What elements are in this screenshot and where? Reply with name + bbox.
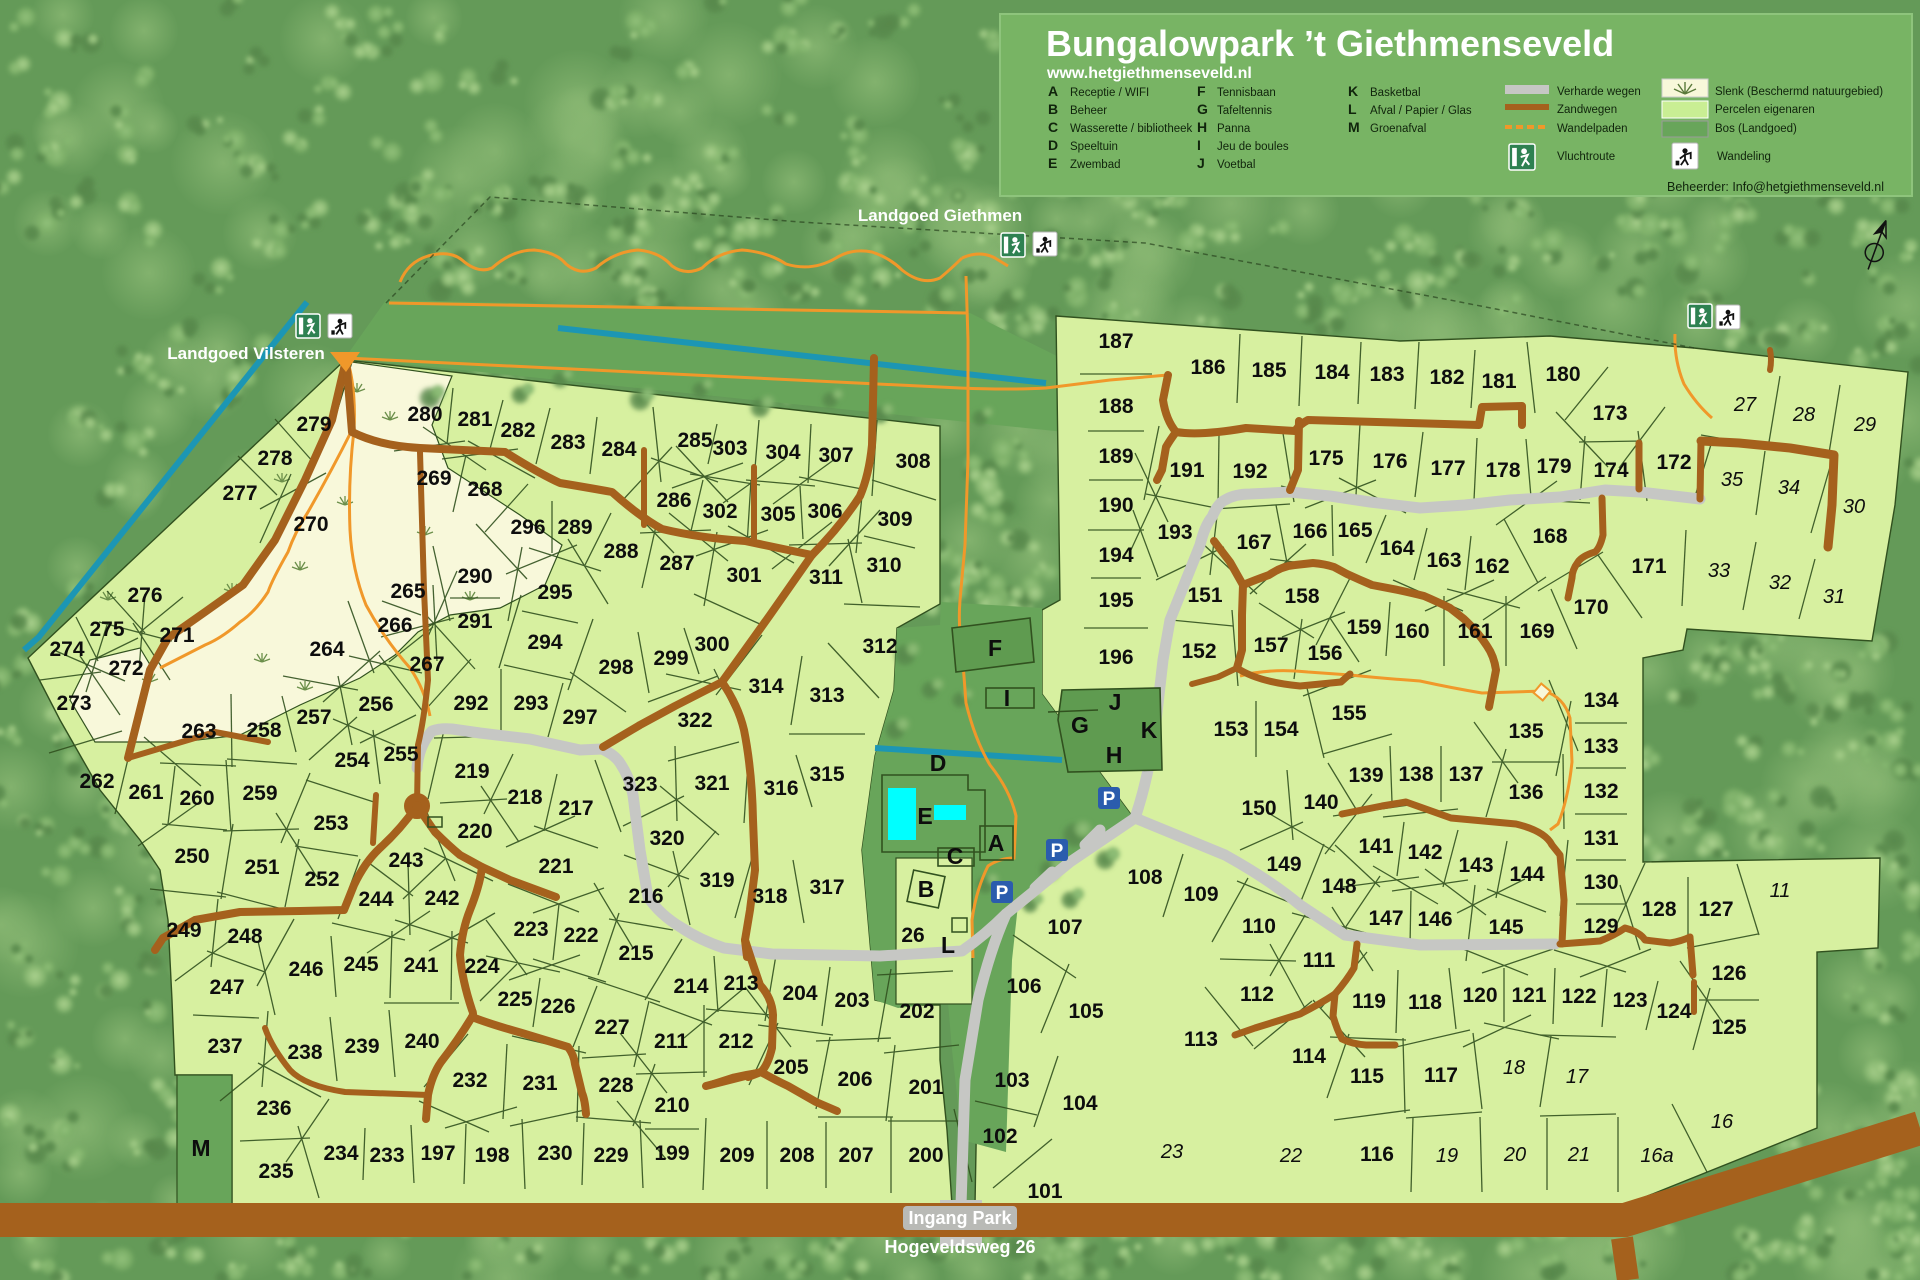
svg-text:I: I xyxy=(1197,137,1201,153)
svg-text:133: 133 xyxy=(1583,735,1618,758)
svg-text:147: 147 xyxy=(1368,907,1403,930)
svg-text:300: 300 xyxy=(694,633,729,656)
svg-text:270: 270 xyxy=(293,513,328,536)
svg-text:289: 289 xyxy=(557,516,592,539)
svg-text:146: 146 xyxy=(1417,908,1452,931)
svg-text:294: 294 xyxy=(527,631,562,654)
svg-text:210: 210 xyxy=(654,1094,689,1117)
svg-text:170: 170 xyxy=(1573,596,1608,619)
svg-text:200: 200 xyxy=(908,1144,943,1167)
svg-text:D: D xyxy=(930,750,947,776)
svg-text:32: 32 xyxy=(1769,572,1791,594)
svg-text:206: 206 xyxy=(837,1068,872,1091)
svg-text:191: 191 xyxy=(1169,459,1204,482)
svg-text:235: 235 xyxy=(258,1160,293,1183)
svg-text:225: 225 xyxy=(497,988,532,1011)
svg-text:256: 256 xyxy=(358,693,393,716)
svg-text:293: 293 xyxy=(513,692,548,715)
svg-text:234: 234 xyxy=(323,1142,358,1165)
svg-text:241: 241 xyxy=(403,954,438,977)
svg-text:135: 135 xyxy=(1508,720,1543,743)
svg-text:31: 31 xyxy=(1823,586,1845,608)
svg-text:Beheerder: Info@hetgiethmensev: Beheerder: Info@hetgiethmenseveld.nl xyxy=(1667,180,1884,194)
svg-text:180: 180 xyxy=(1545,363,1580,386)
svg-text:204: 204 xyxy=(782,982,817,1005)
svg-text:307: 307 xyxy=(818,444,853,467)
svg-text:Beheer: Beheer xyxy=(1070,105,1107,117)
svg-text:Zandwegen: Zandwegen xyxy=(1557,104,1617,116)
svg-text:242: 242 xyxy=(424,887,459,910)
svg-text:H: H xyxy=(1106,742,1123,768)
svg-text:285: 285 xyxy=(677,429,712,452)
svg-text:Wandeling: Wandeling xyxy=(1717,151,1771,163)
svg-text:134: 134 xyxy=(1583,689,1618,712)
svg-text:181: 181 xyxy=(1481,370,1516,393)
svg-text:168: 168 xyxy=(1532,525,1567,548)
svg-text:233: 233 xyxy=(369,1144,404,1167)
svg-text:231: 231 xyxy=(522,1072,557,1095)
svg-text:272: 272 xyxy=(108,657,143,680)
svg-text:104: 104 xyxy=(1062,1092,1097,1115)
svg-text:215: 215 xyxy=(618,942,653,965)
svg-text:319: 319 xyxy=(699,869,734,892)
svg-text:Percelen eigenaren: Percelen eigenaren xyxy=(1715,104,1815,116)
svg-text:C: C xyxy=(1048,119,1058,135)
svg-text:240: 240 xyxy=(404,1030,439,1053)
svg-text:118: 118 xyxy=(1408,991,1442,1014)
svg-text:174: 174 xyxy=(1593,459,1628,482)
svg-text:166: 166 xyxy=(1292,520,1327,543)
svg-text:247: 247 xyxy=(209,976,244,999)
svg-text:268: 268 xyxy=(467,478,502,501)
svg-text:207: 207 xyxy=(838,1144,873,1167)
svg-text:165: 165 xyxy=(1337,519,1372,542)
svg-text:297: 297 xyxy=(562,706,597,729)
svg-text:221: 221 xyxy=(538,855,573,878)
svg-text:117: 117 xyxy=(1424,1064,1458,1087)
svg-text:312: 312 xyxy=(862,635,897,658)
svg-text:249: 249 xyxy=(166,919,201,942)
svg-text:142: 142 xyxy=(1407,841,1442,864)
svg-text:193: 193 xyxy=(1157,521,1192,544)
svg-text:Speeltuin: Speeltuin xyxy=(1070,141,1118,153)
svg-text:212: 212 xyxy=(718,1030,753,1053)
svg-text:280: 280 xyxy=(407,403,442,426)
svg-text:124: 124 xyxy=(1656,1000,1691,1023)
svg-text:105: 105 xyxy=(1068,1000,1103,1023)
svg-text:255: 255 xyxy=(383,743,418,766)
svg-text:222: 222 xyxy=(563,924,598,947)
svg-text:302: 302 xyxy=(702,500,737,523)
svg-text:266: 266 xyxy=(377,614,412,637)
svg-text:216: 216 xyxy=(628,885,663,908)
svg-text:127: 127 xyxy=(1698,898,1733,921)
svg-text:213: 213 xyxy=(723,972,758,995)
svg-text:140: 140 xyxy=(1303,791,1338,814)
svg-text:137: 137 xyxy=(1448,763,1483,786)
svg-text:159: 159 xyxy=(1346,616,1381,639)
svg-text:F: F xyxy=(988,635,1002,661)
svg-text:288: 288 xyxy=(603,540,638,563)
svg-text:220: 220 xyxy=(457,820,492,843)
svg-text:23: 23 xyxy=(1160,1141,1183,1163)
svg-text:34: 34 xyxy=(1778,477,1800,499)
svg-text:236: 236 xyxy=(256,1097,291,1120)
svg-text:141: 141 xyxy=(1358,835,1393,858)
svg-text:295: 295 xyxy=(537,581,572,604)
svg-text:Bos (Landgoed): Bos (Landgoed) xyxy=(1715,123,1797,135)
svg-text:143: 143 xyxy=(1458,854,1493,877)
svg-text:P: P xyxy=(996,883,1009,904)
svg-text:19: 19 xyxy=(1436,1145,1458,1167)
svg-text:Groenafval: Groenafval xyxy=(1370,123,1426,135)
svg-text:301: 301 xyxy=(726,564,761,587)
svg-text:28: 28 xyxy=(1792,404,1815,426)
svg-text:290: 290 xyxy=(457,565,492,588)
svg-text:Tennisbaan: Tennisbaan xyxy=(1217,87,1276,99)
svg-text:237: 237 xyxy=(207,1035,242,1058)
svg-text:304: 304 xyxy=(765,441,800,464)
svg-text:252: 252 xyxy=(304,868,339,891)
svg-text:258: 258 xyxy=(246,719,281,742)
svg-text:Afval / Papier / Glas: Afval / Papier / Glas xyxy=(1370,105,1472,117)
svg-text:151: 151 xyxy=(1187,584,1222,607)
svg-text:167: 167 xyxy=(1236,531,1271,554)
svg-text:243: 243 xyxy=(388,849,423,872)
svg-text:315: 315 xyxy=(809,763,844,786)
svg-text:246: 246 xyxy=(288,958,323,981)
svg-text:323: 323 xyxy=(622,773,657,796)
svg-text:230: 230 xyxy=(537,1142,572,1165)
svg-text:G: G xyxy=(1197,101,1208,117)
svg-text:257: 257 xyxy=(296,706,331,729)
svg-text:130: 130 xyxy=(1583,871,1618,894)
svg-text:149: 149 xyxy=(1266,853,1301,876)
svg-text:196: 196 xyxy=(1098,646,1133,669)
svg-text:292: 292 xyxy=(453,692,488,715)
svg-text:153: 153 xyxy=(1213,718,1248,741)
svg-text:K: K xyxy=(1141,717,1158,743)
svg-text:217: 217 xyxy=(558,797,593,820)
svg-text:132: 132 xyxy=(1583,780,1618,803)
svg-text:208: 208 xyxy=(779,1144,814,1167)
svg-text:316: 316 xyxy=(763,777,798,800)
svg-text:273: 273 xyxy=(56,692,91,715)
svg-text:17: 17 xyxy=(1566,1066,1589,1088)
svg-text:189: 189 xyxy=(1098,445,1133,468)
svg-text:182: 182 xyxy=(1429,366,1464,389)
svg-text:169: 169 xyxy=(1519,620,1554,643)
svg-text:26: 26 xyxy=(901,924,924,947)
svg-text:Zwembad: Zwembad xyxy=(1070,159,1121,171)
svg-text:209: 209 xyxy=(719,1144,754,1167)
svg-text:Panna: Panna xyxy=(1217,123,1251,135)
svg-text:218: 218 xyxy=(507,786,542,809)
svg-text:238: 238 xyxy=(287,1041,322,1064)
svg-text:198: 198 xyxy=(474,1144,509,1167)
svg-text:115: 115 xyxy=(1350,1065,1384,1088)
svg-text:Bungalowpark ’t Giethmenseveld: Bungalowpark ’t Giethmenseveld xyxy=(1046,23,1614,64)
svg-text:33: 33 xyxy=(1708,560,1730,582)
svg-text:192: 192 xyxy=(1232,460,1267,483)
svg-text:30: 30 xyxy=(1843,496,1865,518)
svg-text:110: 110 xyxy=(1242,915,1276,938)
svg-text:179: 179 xyxy=(1536,455,1571,478)
svg-text:158: 158 xyxy=(1284,585,1319,608)
svg-text:229: 229 xyxy=(593,1144,628,1167)
svg-text:274: 274 xyxy=(49,638,84,661)
svg-text:194: 194 xyxy=(1098,544,1133,567)
svg-text:Basketbal: Basketbal xyxy=(1370,87,1421,99)
svg-text:16: 16 xyxy=(1711,1111,1734,1133)
svg-text:322: 322 xyxy=(677,709,712,732)
svg-text:20: 20 xyxy=(1503,1144,1526,1166)
svg-text:103: 103 xyxy=(994,1069,1029,1092)
svg-text:L: L xyxy=(941,932,955,958)
svg-text:Slenk (Beschermd natuurgebied): Slenk (Beschermd natuurgebied) xyxy=(1715,86,1883,98)
svg-text:H: H xyxy=(1197,119,1207,135)
svg-text:263: 263 xyxy=(181,720,216,743)
svg-text:171: 171 xyxy=(1631,555,1666,578)
svg-text:22: 22 xyxy=(1279,1145,1302,1167)
svg-text:156: 156 xyxy=(1307,642,1342,665)
svg-text:160: 160 xyxy=(1394,620,1429,643)
svg-text:311: 311 xyxy=(809,566,843,589)
svg-text:161: 161 xyxy=(1457,620,1492,643)
svg-text:21: 21 xyxy=(1567,1144,1590,1166)
svg-text:Jeu de boules: Jeu de boules xyxy=(1217,141,1289,153)
svg-text:287: 287 xyxy=(659,552,694,575)
svg-text:321: 321 xyxy=(694,772,729,795)
svg-text:310: 310 xyxy=(866,554,901,577)
svg-text:148: 148 xyxy=(1321,875,1356,898)
svg-text:E: E xyxy=(917,803,932,829)
svg-text:279: 279 xyxy=(296,413,331,436)
svg-text:A: A xyxy=(988,830,1005,856)
svg-text:154: 154 xyxy=(1263,718,1298,741)
svg-text:299: 299 xyxy=(653,647,688,670)
svg-text:123: 123 xyxy=(1612,989,1647,1012)
svg-text:223: 223 xyxy=(513,918,548,941)
svg-text:M: M xyxy=(191,1135,210,1161)
svg-text:205: 205 xyxy=(773,1056,808,1079)
svg-text:164: 164 xyxy=(1379,537,1414,560)
svg-text:P: P xyxy=(1051,841,1064,862)
svg-text:108: 108 xyxy=(1127,866,1162,889)
svg-text:J: J xyxy=(1109,689,1122,715)
svg-text:251: 251 xyxy=(244,856,279,879)
svg-text:318: 318 xyxy=(752,885,787,908)
svg-text:155: 155 xyxy=(1331,702,1366,725)
svg-text:298: 298 xyxy=(598,656,633,679)
svg-text:186: 186 xyxy=(1190,356,1225,379)
svg-text:144: 144 xyxy=(1509,863,1544,886)
svg-text:F: F xyxy=(1197,83,1206,99)
svg-text:296: 296 xyxy=(510,516,545,539)
svg-text:119: 119 xyxy=(1352,990,1386,1013)
svg-text:245: 245 xyxy=(343,953,378,976)
svg-text:E: E xyxy=(1048,155,1057,171)
svg-text:Tafeltennis: Tafeltennis xyxy=(1217,105,1272,117)
svg-text:197: 197 xyxy=(420,1142,455,1165)
svg-text:122: 122 xyxy=(1561,985,1596,1008)
svg-text:Wasserette / bibliotheek: Wasserette / bibliotheek xyxy=(1070,123,1193,135)
svg-text:195: 195 xyxy=(1098,589,1133,612)
svg-text:303: 303 xyxy=(712,437,747,460)
svg-text:35: 35 xyxy=(1721,469,1744,491)
svg-text:J: J xyxy=(1197,155,1205,171)
svg-text:162: 162 xyxy=(1474,555,1509,578)
svg-text:16a: 16a xyxy=(1640,1145,1673,1167)
svg-text:I: I xyxy=(1004,685,1010,711)
svg-text:Hogeveldsweg 26: Hogeveldsweg 26 xyxy=(884,1237,1035,1257)
svg-text:313: 313 xyxy=(809,684,844,707)
svg-text:152: 152 xyxy=(1181,640,1216,663)
svg-text:202: 202 xyxy=(899,1000,934,1023)
svg-text:A: A xyxy=(1048,83,1058,99)
svg-text:Verharde wegen: Verharde wegen xyxy=(1557,86,1641,98)
svg-text:187: 187 xyxy=(1098,330,1133,353)
svg-text:248: 248 xyxy=(227,925,262,948)
svg-text:29: 29 xyxy=(1853,414,1876,436)
svg-text:250: 250 xyxy=(174,845,209,868)
svg-text:277: 277 xyxy=(222,482,257,505)
svg-text:175: 175 xyxy=(1308,447,1343,470)
svg-text:131: 131 xyxy=(1583,827,1618,850)
svg-text:253: 253 xyxy=(313,812,348,835)
svg-text:261: 261 xyxy=(128,781,163,804)
svg-text:Wandelpaden: Wandelpaden xyxy=(1557,123,1628,135)
svg-text:102: 102 xyxy=(982,1125,1017,1148)
svg-text:262: 262 xyxy=(79,770,114,793)
svg-text:176: 176 xyxy=(1372,450,1407,473)
svg-text:190: 190 xyxy=(1098,494,1133,517)
svg-text:254: 254 xyxy=(334,749,369,772)
svg-text:188: 188 xyxy=(1098,395,1133,418)
svg-text:284: 284 xyxy=(601,438,636,461)
svg-text:185: 185 xyxy=(1251,359,1286,382)
svg-text:211: 211 xyxy=(654,1030,688,1053)
svg-text:B: B xyxy=(1048,101,1058,117)
svg-text:M: M xyxy=(1348,119,1360,135)
svg-text:113: 113 xyxy=(1184,1028,1218,1051)
svg-text:P: P xyxy=(1103,789,1116,810)
svg-text:305: 305 xyxy=(760,503,795,526)
svg-text:183: 183 xyxy=(1369,363,1404,386)
svg-text:291: 291 xyxy=(457,610,492,633)
svg-text:276: 276 xyxy=(127,584,162,607)
svg-text:227: 227 xyxy=(594,1016,629,1039)
svg-text:136: 136 xyxy=(1508,781,1543,804)
svg-text:177: 177 xyxy=(1430,457,1465,480)
svg-text:264: 264 xyxy=(309,638,344,661)
svg-text:199: 199 xyxy=(654,1142,689,1165)
svg-text:139: 139 xyxy=(1348,764,1383,787)
svg-text:259: 259 xyxy=(242,782,277,805)
svg-text:121: 121 xyxy=(1511,984,1546,1007)
svg-text:111: 111 xyxy=(1303,949,1336,972)
svg-text:265: 265 xyxy=(390,580,425,603)
svg-text:11: 11 xyxy=(1770,880,1791,902)
svg-text:114: 114 xyxy=(1292,1045,1326,1068)
svg-text:Landgoed Giethmen: Landgoed Giethmen xyxy=(858,206,1022,225)
svg-text:Landgoed Vilsteren: Landgoed Vilsteren xyxy=(167,344,324,363)
svg-text:106: 106 xyxy=(1006,975,1041,998)
svg-text:173: 173 xyxy=(1592,402,1627,425)
svg-text:172: 172 xyxy=(1656,451,1691,474)
svg-text:271: 271 xyxy=(159,624,194,647)
svg-text:K: K xyxy=(1348,83,1358,99)
svg-text:129: 129 xyxy=(1583,915,1618,938)
svg-text:269: 269 xyxy=(416,467,451,490)
svg-text:109: 109 xyxy=(1183,883,1218,906)
svg-text:260: 260 xyxy=(179,787,214,810)
svg-text:163: 163 xyxy=(1426,549,1461,572)
svg-text:27: 27 xyxy=(1733,394,1757,416)
svg-text:278: 278 xyxy=(257,447,292,470)
svg-text:G: G xyxy=(1071,712,1089,738)
svg-text:120: 120 xyxy=(1462,984,1497,1007)
svg-text:317: 317 xyxy=(809,876,844,899)
svg-text:286: 286 xyxy=(656,489,691,512)
svg-text:112: 112 xyxy=(1240,983,1274,1006)
svg-text:D: D xyxy=(1048,137,1058,153)
svg-text:Ingang Park: Ingang Park xyxy=(908,1208,1012,1228)
svg-text:306: 306 xyxy=(807,500,842,523)
svg-text:201: 201 xyxy=(908,1076,943,1099)
svg-text:214: 214 xyxy=(673,975,708,998)
svg-text:232: 232 xyxy=(452,1069,487,1092)
svg-text:267: 267 xyxy=(409,653,444,676)
svg-text:116: 116 xyxy=(1360,1143,1394,1166)
svg-text:228: 228 xyxy=(598,1074,633,1097)
svg-text:244: 244 xyxy=(358,888,393,911)
svg-text:226: 226 xyxy=(540,995,575,1018)
svg-text:203: 203 xyxy=(834,989,869,1012)
svg-text:314: 314 xyxy=(748,675,783,698)
svg-text:283: 283 xyxy=(550,431,585,454)
svg-text:www.hetgiethmenseveld.nl: www.hetgiethmenseveld.nl xyxy=(1046,65,1252,82)
svg-text:308: 308 xyxy=(895,450,930,473)
svg-text:125: 125 xyxy=(1711,1016,1746,1039)
svg-text:150: 150 xyxy=(1241,797,1276,820)
svg-text:128: 128 xyxy=(1641,898,1676,921)
svg-text:281: 281 xyxy=(457,408,492,431)
svg-text:138: 138 xyxy=(1398,763,1433,786)
svg-text:18: 18 xyxy=(1503,1057,1525,1079)
svg-text:178: 178 xyxy=(1485,459,1520,482)
svg-text:275: 275 xyxy=(89,618,124,641)
svg-text:282: 282 xyxy=(500,419,535,442)
svg-text:Voetbal: Voetbal xyxy=(1217,159,1255,171)
svg-text:309: 309 xyxy=(877,508,912,531)
svg-text:145: 145 xyxy=(1488,916,1523,939)
svg-text:B: B xyxy=(918,876,935,902)
svg-text:Vluchtroute: Vluchtroute xyxy=(1557,151,1615,163)
svg-text:101: 101 xyxy=(1027,1180,1062,1203)
svg-text:C: C xyxy=(947,843,964,869)
svg-text:239: 239 xyxy=(344,1035,379,1058)
svg-text:219: 219 xyxy=(454,760,489,783)
svg-text:Receptie / WIFI: Receptie / WIFI xyxy=(1070,87,1149,99)
svg-text:320: 320 xyxy=(649,827,684,850)
svg-text:L: L xyxy=(1348,101,1357,117)
svg-text:107: 107 xyxy=(1047,916,1082,939)
svg-text:224: 224 xyxy=(464,955,499,978)
svg-text:157: 157 xyxy=(1253,634,1288,657)
svg-text:184: 184 xyxy=(1314,361,1349,384)
svg-text:126: 126 xyxy=(1711,962,1746,985)
